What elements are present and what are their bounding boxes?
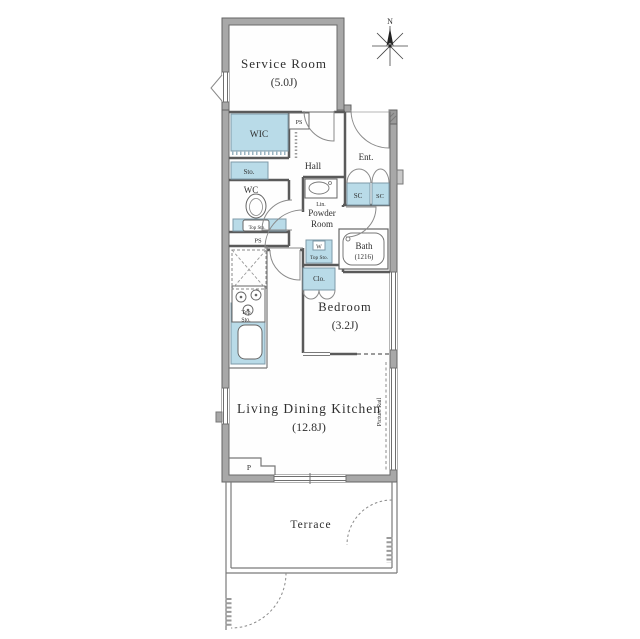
kitchen-top-sto-label-1: Top (242, 310, 251, 316)
pillar-label: P (247, 463, 251, 472)
bath-label: Bath (356, 241, 373, 251)
bedroom-size-label: (3.2J) (332, 320, 359, 332)
wic-label: WIC (250, 130, 268, 140)
picture-rail-label: Picture Rail (377, 397, 383, 426)
service-room-label: Service Room (241, 56, 327, 71)
ps-lower-label: PS (254, 238, 262, 245)
service-room-size: (5.0J) (271, 77, 298, 89)
ps-upper-label: PS (296, 120, 303, 126)
kitchen-top-sto-label-2: Sto. (241, 318, 251, 324)
sc-right-label: SC (376, 193, 384, 200)
sto-label: Sto. (243, 168, 254, 176)
window-ldk-left-outer-box (216, 412, 222, 422)
sc-left-label: SC (354, 192, 363, 200)
washer-top-sto-label: Top Sto. (310, 255, 328, 261)
window-casement-triangle (211, 75, 222, 101)
terrace-label: Terrace (290, 519, 331, 531)
entrance-label: Ent. (359, 152, 374, 162)
ldk-label: Living Dining Kitchen (237, 401, 381, 416)
washer-mark-label: W (316, 245, 322, 251)
linen-label: Lin. (316, 202, 326, 208)
wc-top-sto-label: Top Sto. (249, 226, 266, 231)
ldk-size-label: (12.8J) (292, 420, 326, 434)
kitchen-sink-icon (238, 325, 262, 359)
bedroom-label: Bedroom (318, 300, 372, 314)
clo-label: Clo. (313, 275, 325, 283)
meter-box (397, 170, 403, 184)
terrace-boundary-lines (226, 482, 397, 630)
powder-room-label-2: Room (311, 219, 333, 229)
wc-label: WC (244, 185, 259, 195)
powder-room-label-1: Powder (308, 208, 336, 218)
compass-north-label: N (387, 17, 393, 26)
bath-size-label: (1216) (355, 253, 374, 261)
hall-label: Hall (305, 162, 322, 172)
sink-icon (305, 179, 337, 198)
floorplan-page: Service Room (5.0J) WIC PS Sto. Hall Ent… (0, 0, 640, 639)
compass-icon (372, 26, 408, 66)
terrace-gate-bottom-arc (231, 573, 286, 628)
floorplan-drawing: Service Room (5.0J) WIC PS Sto. Hall Ent… (0, 0, 640, 639)
terrace-gate-right-arc (347, 500, 392, 545)
terrace-structure (226, 482, 397, 630)
